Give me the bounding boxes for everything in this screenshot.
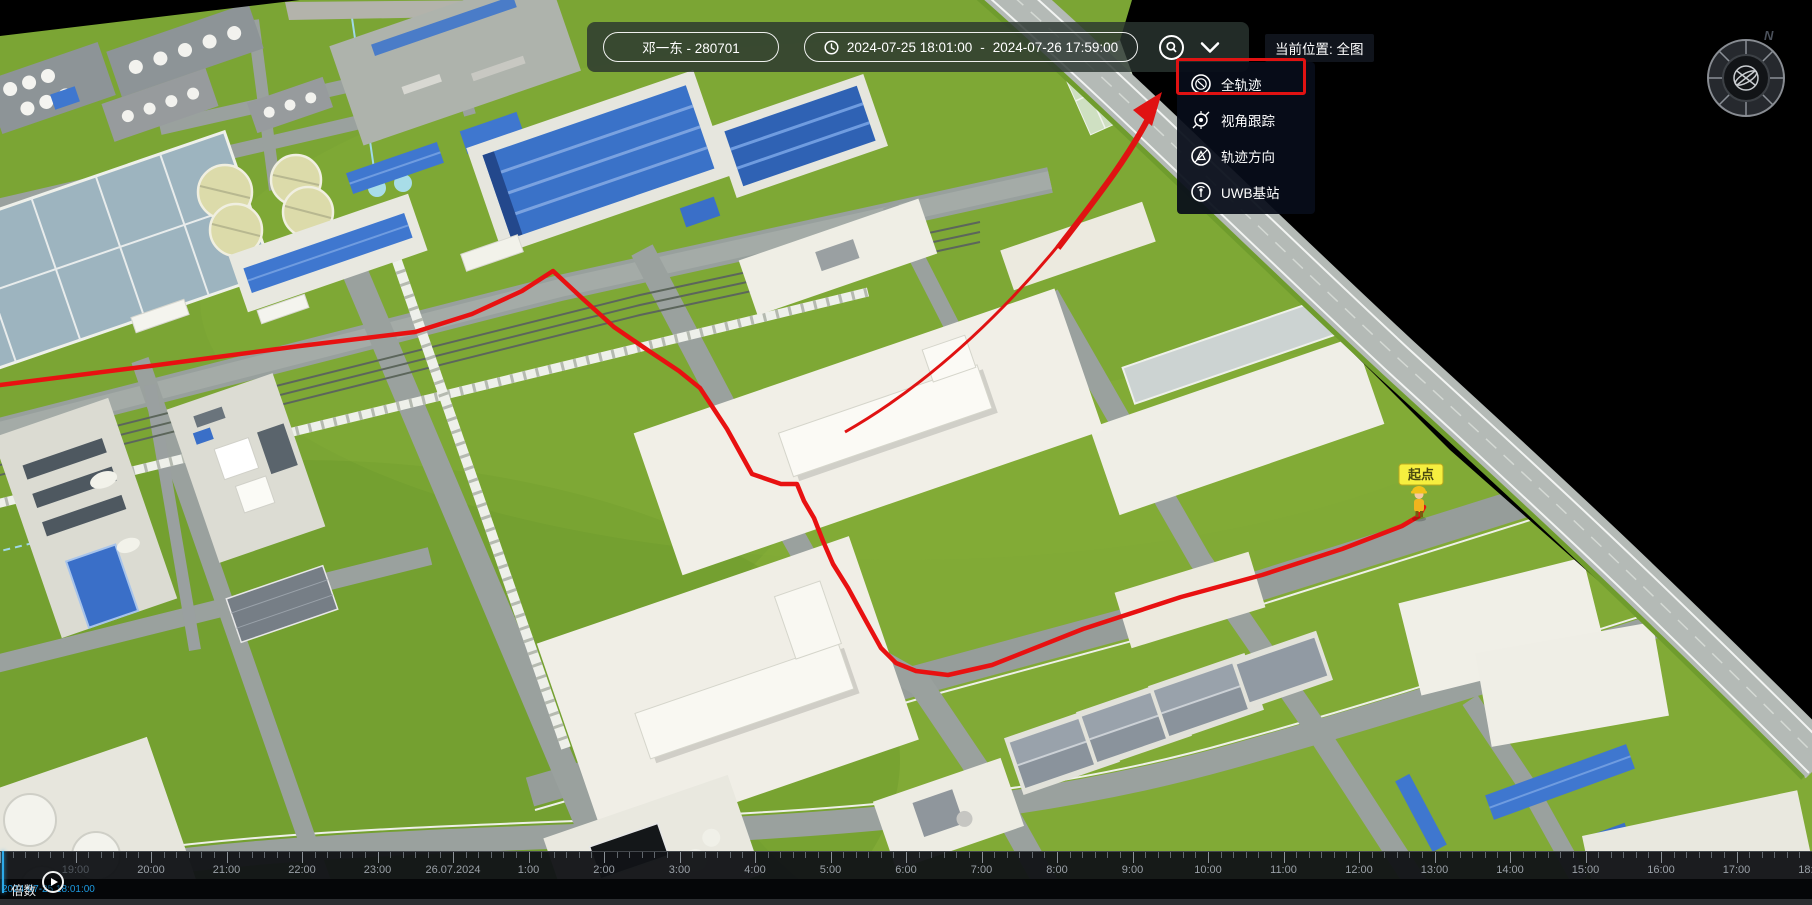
timeline-tick xyxy=(1460,852,1461,858)
start-marker-label: 起点 xyxy=(1407,467,1434,482)
timeline-tick xyxy=(1573,852,1574,858)
timeline-tick xyxy=(25,852,26,858)
timeline-tick xyxy=(1359,852,1360,863)
timeline-tick xyxy=(906,852,907,863)
timeline-tick xyxy=(1170,852,1171,858)
timeline-tick xyxy=(289,852,290,858)
timeline-tick xyxy=(277,852,278,858)
timeline-tick xyxy=(164,852,165,858)
timeline-tick xyxy=(1107,852,1108,858)
timeline-tick xyxy=(604,852,605,863)
timeline-tick xyxy=(1598,852,1599,858)
timeline-hour-label: 21:00 xyxy=(213,864,241,876)
timeline-tick xyxy=(566,852,567,858)
timeline-tick xyxy=(1636,852,1637,858)
timeline-hour-label: 18:00 xyxy=(1798,864,1812,876)
timeline-tick xyxy=(1372,852,1373,858)
timeline-tick xyxy=(893,852,894,858)
timeline-tick xyxy=(1145,852,1146,858)
timeline-tick xyxy=(415,852,416,858)
person-select-value: 邓一东 - 280701 xyxy=(642,37,740,57)
timeline-tick xyxy=(554,852,555,858)
timeline-tick xyxy=(1221,852,1222,858)
timeline-hour-label: 6:00 xyxy=(895,864,916,876)
timeline-tick xyxy=(440,852,441,858)
timeline-tick xyxy=(1183,852,1184,858)
compass-north-label: N xyxy=(1764,28,1774,43)
timeline-tick xyxy=(1158,852,1159,858)
timeline-tick xyxy=(365,852,366,858)
timeline-tick xyxy=(868,852,869,858)
timeline-tick xyxy=(805,852,806,858)
timeline-hour-label: 17:00 xyxy=(1723,864,1751,876)
timeline-tick xyxy=(1120,852,1121,858)
timeline-tick xyxy=(1435,852,1436,863)
timeline-tick xyxy=(50,852,51,858)
date-range-picker[interactable]: 2024-07-25 18:01:00 - 2024-07-26 17:59:0… xyxy=(804,32,1138,62)
timeline-tick xyxy=(239,852,240,858)
timeline-tick xyxy=(1623,852,1624,858)
uwb-station-icon xyxy=(1190,181,1212,203)
timeline-tick xyxy=(378,852,379,863)
timeline-tick xyxy=(931,852,932,858)
timeline-tick xyxy=(214,852,215,858)
timeline-tick xyxy=(0,852,1,863)
clock-icon xyxy=(824,40,839,55)
track-options-dropdown-toggle[interactable] xyxy=(1199,41,1221,54)
chevron-down-icon xyxy=(1199,41,1221,54)
timeline-tick xyxy=(1674,852,1675,858)
timeline-tick xyxy=(478,852,479,858)
timeline-tick xyxy=(1648,852,1649,858)
timeline-tick xyxy=(38,852,39,858)
timeline-tick xyxy=(994,852,995,858)
timeline-tick xyxy=(466,852,467,858)
person-select[interactable]: 邓一东 - 280701 xyxy=(603,32,779,62)
timeline-tick xyxy=(101,852,102,858)
current-location-label: 当前位置: 全图 xyxy=(1275,42,1364,57)
timeline-tick xyxy=(1032,852,1033,858)
timeline-tick xyxy=(1586,852,1587,863)
timeline-tick xyxy=(1422,852,1423,858)
timeline-tick xyxy=(1485,852,1486,858)
timeline-tick xyxy=(453,852,454,863)
timeline-tick xyxy=(1699,852,1700,858)
timeline-tick xyxy=(138,852,139,858)
timeline-tick xyxy=(1611,852,1612,858)
timeline-tick xyxy=(390,852,391,858)
top-toolbar: 邓一东 - 280701 2024-07-25 18:01:00 - 2024-… xyxy=(587,22,1249,72)
timeline-tick xyxy=(1309,852,1310,858)
timeline-tick xyxy=(1233,852,1234,858)
date-separator: - xyxy=(980,40,985,55)
timeline-tick xyxy=(717,852,718,858)
timeline-tick xyxy=(944,852,945,858)
timeline-tick xyxy=(1095,852,1096,858)
compass-widget[interactable]: N xyxy=(1698,26,1794,122)
search-icon xyxy=(1164,40,1179,55)
timeline-tick xyxy=(1799,852,1800,858)
timeline-tick xyxy=(1472,852,1473,858)
timeline-hour-label: 10:00 xyxy=(1194,864,1222,876)
timeline-tick xyxy=(227,852,228,863)
timeline-tick xyxy=(1749,852,1750,858)
timeline-tick xyxy=(252,852,253,858)
timeline-tick xyxy=(1711,852,1712,858)
timeline-tick xyxy=(516,852,517,858)
app-window: 起点 邓一东 - 280701 2024-07-25 18:01:00 - 20… xyxy=(0,0,1812,905)
timeline-tick xyxy=(1384,852,1385,858)
timeline-hour-label: 4:00 xyxy=(744,864,765,876)
timeline-tick xyxy=(1762,852,1763,858)
timeline-tick xyxy=(201,852,202,858)
timeline-tick xyxy=(1737,852,1738,863)
timeline-tick xyxy=(176,852,177,858)
menu-item-label: UWB基站 xyxy=(1221,182,1280,202)
timeline-tick xyxy=(755,852,756,863)
timeline-tick xyxy=(667,852,668,858)
view-follow-icon xyxy=(1190,109,1212,131)
menu-item-full-track[interactable]: 全轨迹 xyxy=(1177,66,1315,102)
timeline-controls: 倍数 2024-07-25 18:01:00 xyxy=(0,879,1812,899)
timeline-tick xyxy=(503,852,504,858)
timeline-tick xyxy=(1661,852,1662,863)
timeline-tick xyxy=(1007,852,1008,858)
timeline-tick xyxy=(327,852,328,858)
timeline-tick xyxy=(742,852,743,858)
timeline-tick xyxy=(1774,852,1775,858)
timeline-tick xyxy=(1271,852,1272,858)
timeline-tick xyxy=(1133,852,1134,863)
timeline-tick xyxy=(428,852,429,858)
timeline-tick xyxy=(1724,852,1725,858)
timeline-tick xyxy=(1057,852,1058,863)
timeline-tick xyxy=(1296,852,1297,858)
timeline-tick xyxy=(1082,852,1083,858)
timeline-tick xyxy=(843,852,844,858)
menu-item-uwb-station[interactable]: UWB基站 xyxy=(1177,174,1315,210)
timeline-hour-label: 19:00 xyxy=(62,864,90,876)
track-direction-icon xyxy=(1190,145,1212,167)
timeline-tick xyxy=(340,852,341,858)
timeline-tick xyxy=(76,852,77,863)
timeline-tick xyxy=(1787,852,1788,858)
timeline-ticks[interactable]: 19:0020:0021:0022:0023:0026.07.20241:002… xyxy=(0,851,1812,879)
timeline-hour-label: 8:00 xyxy=(1046,864,1067,876)
track-options-menu: 全轨迹 视角跟踪 轨迹方向 xyxy=(1177,62,1315,214)
timeline-hour-label: 11:00 xyxy=(1270,864,1297,876)
full-track-icon xyxy=(1190,73,1212,95)
speed-multiplier-label[interactable]: 倍数 xyxy=(11,880,36,899)
timeline-tick xyxy=(1284,852,1285,863)
timeline-tick xyxy=(919,852,920,858)
locate-search-button[interactable] xyxy=(1159,35,1184,60)
timeline-tick xyxy=(1447,852,1448,858)
menu-item-track-direction[interactable]: 轨迹方向 xyxy=(1177,138,1315,174)
timeline-tick xyxy=(1497,852,1498,858)
timeline-tick xyxy=(315,852,316,858)
timeline-tick xyxy=(1019,852,1020,858)
play-icon xyxy=(51,878,58,886)
timeline-tick xyxy=(705,852,706,858)
timeline-tick xyxy=(818,852,819,858)
timeline-tick xyxy=(1321,852,1322,858)
timeline-tick xyxy=(13,852,14,858)
timeline-tick xyxy=(88,852,89,858)
timeline-tick xyxy=(1346,852,1347,858)
date-start-value: 2024-07-25 18:01:00 xyxy=(847,40,972,55)
timeline-tick xyxy=(1548,852,1549,858)
timeline-tick xyxy=(591,852,592,858)
timeline-tick xyxy=(302,852,303,863)
timeline-hour-label: 22:00 xyxy=(288,864,316,876)
menu-item-view-follow[interactable]: 视角跟踪 xyxy=(1177,102,1315,138)
timeline-hour-label: 1:00 xyxy=(518,864,539,876)
timeline-tick xyxy=(126,852,127,858)
timeline-hour-label: 2:00 xyxy=(593,864,614,876)
timeline-tick xyxy=(629,852,630,858)
timeline-tick xyxy=(1397,852,1398,858)
timeline-tick xyxy=(264,852,265,858)
timeline-hour-label: 26.07.2024 xyxy=(425,864,480,876)
timeline-hour-label: 7:00 xyxy=(971,864,992,876)
timeline-tick xyxy=(189,852,190,858)
timeline-tick xyxy=(793,852,794,858)
timeline-cursor[interactable] xyxy=(2,851,4,893)
timeline-tick xyxy=(1044,852,1045,858)
timeline-hour-label: 9:00 xyxy=(1122,864,1143,876)
timeline-hour-label: 23:00 xyxy=(364,864,392,876)
timeline-hour-label: 13:00 xyxy=(1421,864,1449,876)
menu-item-label: 全轨迹 xyxy=(1221,74,1262,94)
timeline-tick xyxy=(730,852,731,858)
timeline-tick xyxy=(1523,852,1524,858)
timeline-hour-label: 20:00 xyxy=(137,864,165,876)
timeline-tick xyxy=(780,852,781,858)
timeline-tick xyxy=(541,852,542,858)
timeline-tick xyxy=(1409,852,1410,858)
date-end-value: 2024-07-26 17:59:00 xyxy=(993,40,1118,55)
timeline-tick xyxy=(956,852,957,858)
timeline-tick xyxy=(654,852,655,858)
timeline-tick xyxy=(529,852,530,863)
timeline-tick xyxy=(491,852,492,858)
timeline-tick xyxy=(352,852,353,858)
timeline-tick xyxy=(1560,852,1561,858)
timeline-tick xyxy=(768,852,769,858)
timeline-tick xyxy=(579,852,580,858)
timeline-tick xyxy=(1208,852,1209,863)
timeline-tick xyxy=(1070,852,1071,858)
menu-item-label: 轨迹方向 xyxy=(1221,146,1275,166)
timeline-tick xyxy=(692,852,693,858)
current-location-chip: 当前位置: 全图 xyxy=(1265,34,1374,62)
timeline-tick xyxy=(617,852,618,858)
timeline-tick xyxy=(1334,852,1335,858)
timeline-tick xyxy=(969,852,970,858)
timeline-tick xyxy=(1246,852,1247,858)
timeline-tick xyxy=(680,852,681,863)
timeline-tick xyxy=(403,852,404,858)
timeline-tick xyxy=(1510,852,1511,863)
timeline-tick xyxy=(642,852,643,858)
timeline-tick xyxy=(982,852,983,863)
timeline-tick xyxy=(1535,852,1536,858)
timeline-tick xyxy=(881,852,882,858)
timeline-panel: 19:0020:0021:0022:0023:0026.07.20241:002… xyxy=(0,851,1812,905)
timeline-hour-label: 15:00 xyxy=(1572,864,1600,876)
timeline-tick xyxy=(1258,852,1259,858)
timeline-hour-label: 5:00 xyxy=(820,864,841,876)
play-button[interactable] xyxy=(42,871,64,893)
timeline-tick xyxy=(831,852,832,863)
timeline-hour-label: 16:00 xyxy=(1647,864,1675,876)
timeline-hour-label: 12:00 xyxy=(1345,864,1373,876)
timeline-tick xyxy=(1195,852,1196,858)
timeline-tick xyxy=(63,852,64,858)
timeline-bottom-bar xyxy=(0,899,1812,905)
map-3d-view[interactable]: 起点 xyxy=(0,0,1812,905)
timeline-tick xyxy=(1686,852,1687,858)
timeline-tick xyxy=(856,852,857,858)
menu-item-label: 视角跟踪 xyxy=(1221,110,1275,130)
timeline-hour-label: 14:00 xyxy=(1496,864,1524,876)
timeline-tick xyxy=(113,852,114,858)
timeline-tick xyxy=(151,852,152,863)
timeline-hour-label: 3:00 xyxy=(669,864,690,876)
